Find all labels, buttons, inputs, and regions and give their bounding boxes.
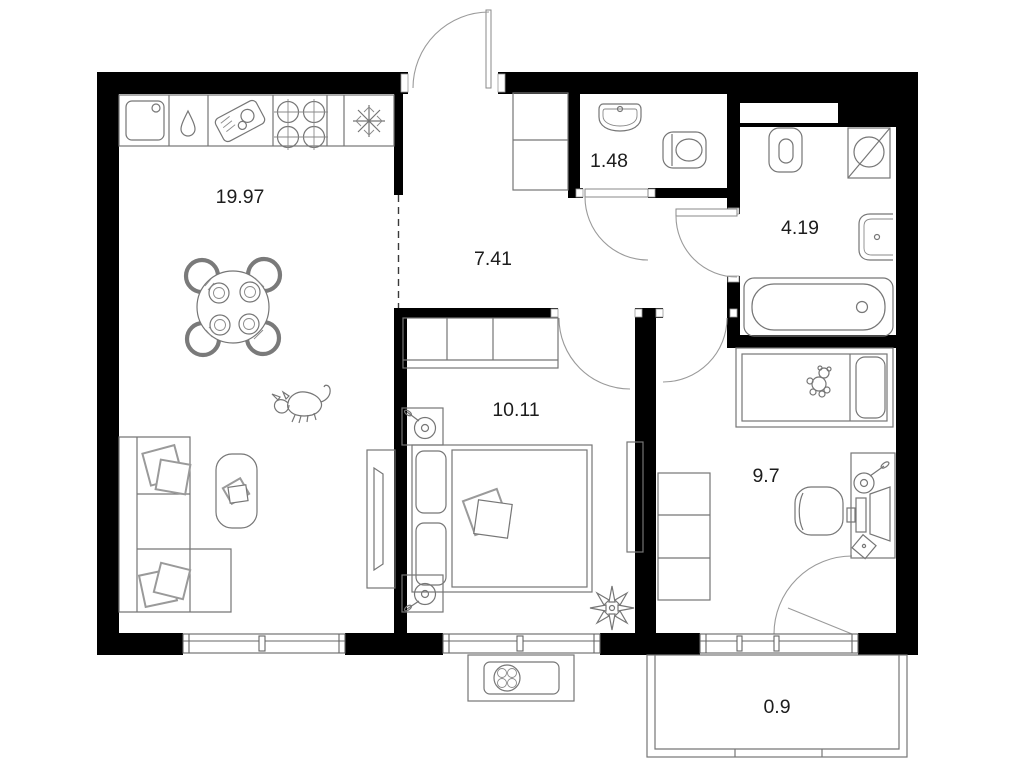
room-label-wc: 1.48 — [590, 150, 628, 172]
room-label-bedroom: 10.11 — [492, 399, 539, 421]
child-bed — [736, 348, 893, 427]
bedroom-door — [559, 318, 630, 389]
duct-niche — [740, 103, 838, 123]
wc-door-leaf — [585, 189, 648, 197]
plant-icon — [590, 586, 634, 630]
bedroom-window — [443, 634, 600, 653]
balcony-door-leaf — [788, 608, 852, 634]
teddy-bear-icon — [807, 366, 831, 397]
bathroom-door-arc — [676, 216, 737, 277]
balcony-door-arc — [774, 556, 852, 634]
room-label-kids-room: 9.7 — [752, 465, 779, 487]
pillow-icon — [156, 460, 191, 495]
office-chair-icon — [795, 487, 843, 535]
walls — [97, 72, 918, 655]
kids-room-door-arc — [663, 318, 727, 382]
room-label-balcony: 0.9 — [763, 696, 790, 718]
balcony-door — [774, 556, 852, 634]
double-bed — [412, 445, 592, 592]
bedroom-wardrobe — [403, 318, 558, 368]
bath-sink-icon — [859, 214, 893, 260]
desk-lamp-icon — [854, 461, 890, 493]
dishwasher-drop-icon — [181, 111, 195, 136]
floor-plan: 19.97 7.41 1.48 4.19 10.11 9.7 0.9 — [0, 0, 1018, 768]
kitchen-sink-icon — [126, 101, 164, 140]
desk — [847, 453, 895, 559]
wc-door — [585, 189, 648, 260]
kitchen-counter — [119, 95, 394, 150]
cutting-board-icon — [214, 99, 267, 144]
pillow-icon — [474, 500, 512, 538]
floor-plan-canvas: 19.97 7.41 1.48 4.19 10.11 9.7 0.9 — [0, 0, 1018, 768]
entry-door — [413, 10, 491, 88]
monitor-icon — [847, 487, 890, 541]
room-label-bathroom: 4.19 — [781, 217, 819, 239]
bathroom-door-leaf — [676, 209, 737, 216]
nightstand-lamp-icon — [402, 408, 443, 445]
air-conditioner-icon — [468, 655, 574, 701]
stove-icon — [274, 99, 328, 150]
nightstand-lamp-icon — [402, 575, 443, 612]
bedroom-furniture — [402, 318, 643, 630]
balcony-window-door-unit — [700, 634, 858, 653]
hallway-closet — [513, 93, 568, 190]
sofa — [119, 437, 231, 612]
wc-sink-icon — [599, 104, 641, 131]
entry-door-arc — [413, 12, 489, 88]
bathroom-toilet-icon — [769, 128, 802, 172]
pillow-icon — [154, 563, 190, 599]
kids-wardrobe — [658, 473, 710, 600]
tv-stand — [367, 450, 395, 588]
washing-machine-icon — [848, 128, 890, 178]
tv-screen-icon — [374, 468, 383, 570]
bathroom-door — [676, 209, 737, 277]
wc-door-arc — [585, 197, 648, 260]
entry-door-leaf — [486, 10, 491, 88]
room-label-hallway: 7.41 — [474, 248, 512, 270]
dining-table — [186, 259, 280, 355]
dog-icon — [272, 385, 330, 423]
notebook-icon — [852, 535, 876, 559]
living-room-window — [183, 634, 345, 653]
room-label-kitchen-living: 19.97 — [216, 186, 265, 208]
book-icon — [228, 485, 248, 503]
bathtub-icon — [744, 278, 893, 336]
coffee-table — [216, 454, 257, 528]
toilet-icon — [663, 132, 706, 168]
bedroom-door-arc — [559, 318, 630, 389]
kids-room-door — [663, 318, 727, 382]
fridge-snowflake-icon — [353, 105, 385, 137]
